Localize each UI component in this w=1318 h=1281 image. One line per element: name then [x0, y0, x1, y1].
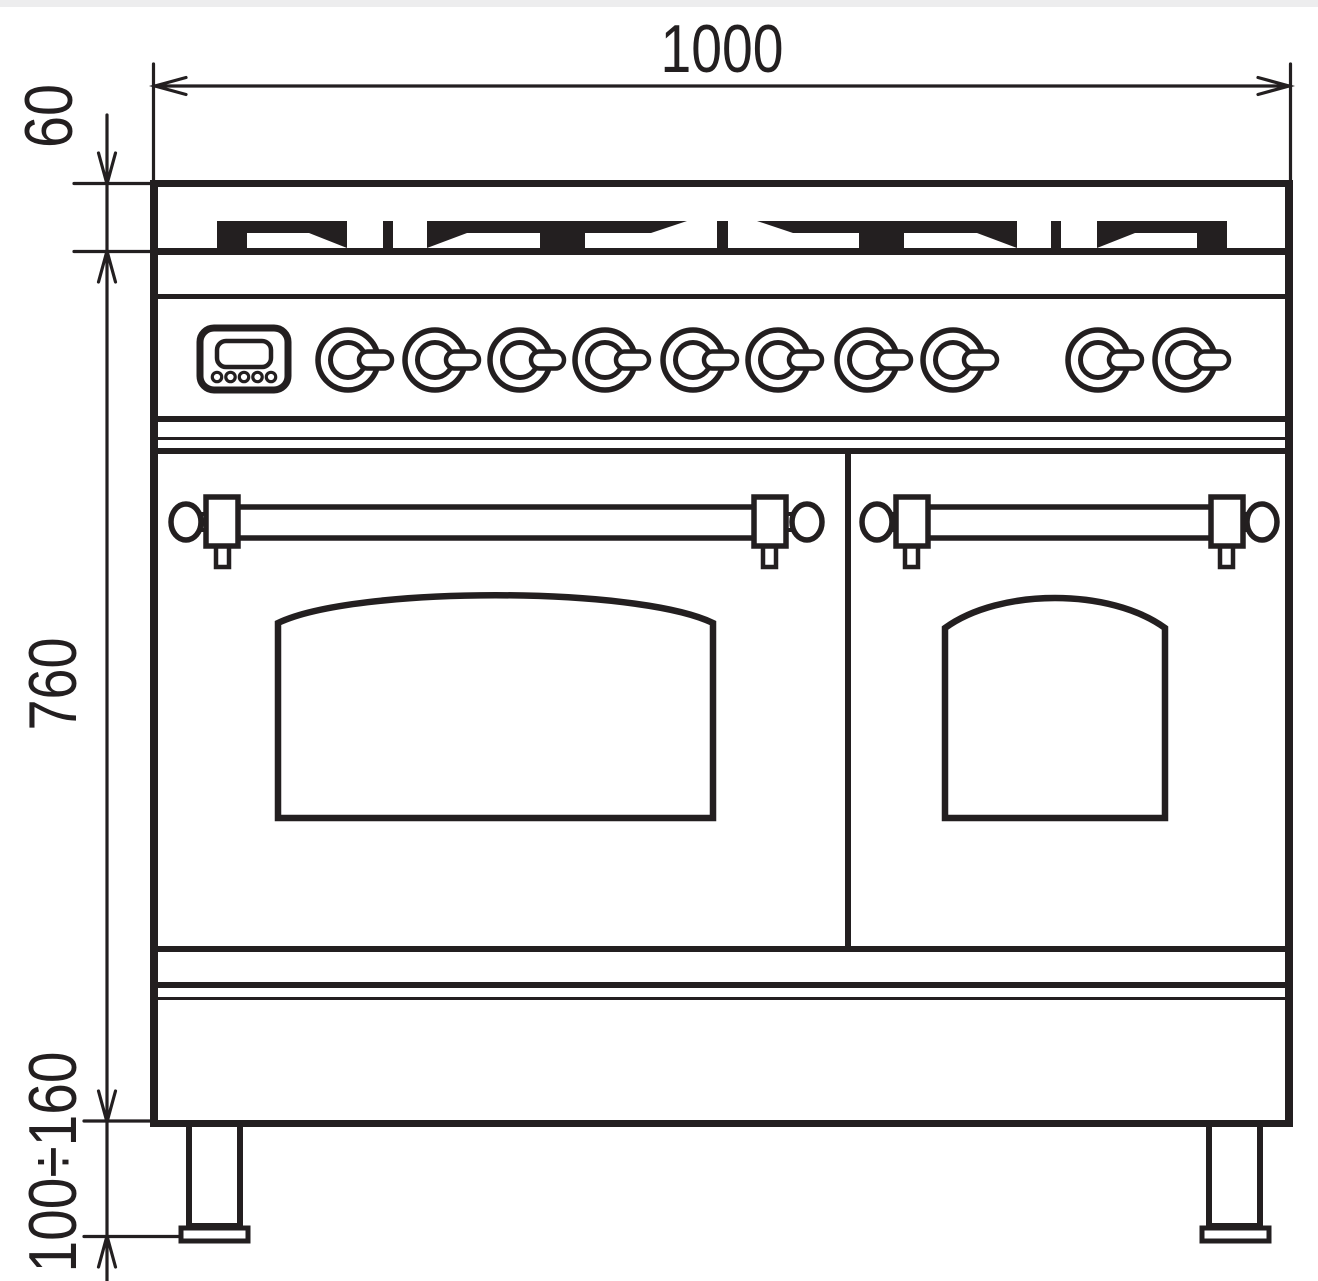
pan-support-mid-left — [427, 221, 687, 252]
right-leg-foot — [1202, 1228, 1269, 1241]
knob-1 — [318, 330, 392, 390]
pan-support-post-1 — [383, 221, 393, 252]
knob-4 — [575, 330, 649, 390]
handle-bracket — [896, 497, 928, 546]
right-leg — [1209, 1127, 1260, 1226]
range-cooker-elevation: 1000 60 760 100÷160 — [0, 0, 1318, 1281]
hob-pan-supports — [217, 221, 1227, 252]
dimension-label-leg-height-range: 100÷160 — [15, 1052, 91, 1273]
control-panel-bottom-line — [157, 416, 1287, 422]
dimension-label-hob-height: 60 — [11, 84, 87, 148]
knob-6 — [748, 330, 822, 390]
doors-bottom-line — [157, 946, 1287, 952]
right-door-handle — [862, 497, 1277, 567]
legs — [181, 1127, 1269, 1241]
trim-line-thin-upper — [157, 437, 1287, 440]
left-leg — [189, 1127, 240, 1226]
left-leg-foot — [181, 1228, 248, 1241]
handle-bar — [237, 507, 755, 538]
handle-end-ball — [171, 504, 201, 540]
handle-bracket — [754, 497, 786, 546]
trim-line-thin-lower — [157, 997, 1287, 1000]
pan-support-left — [217, 221, 347, 252]
dimension-label-body-height: 760 — [15, 638, 91, 731]
handle-bracket — [1211, 497, 1243, 546]
pan-support-post-2 — [1051, 221, 1061, 252]
display-button-4 — [253, 372, 262, 381]
dimension-overall-width: 1000 — [154, 11, 1291, 180]
hob-top-line — [150, 180, 1293, 187]
control-panel-top-line — [157, 294, 1287, 299]
handle-bracket — [206, 497, 238, 546]
display-button-3 — [239, 372, 248, 381]
display-screen — [217, 341, 271, 367]
dimension-left-chain: 60 760 100÷160 — [11, 84, 184, 1281]
knob-5 — [663, 330, 737, 390]
right-oven-window — [945, 598, 1165, 818]
handle-end-ball — [862, 504, 892, 540]
lower-band-line — [150, 982, 1293, 988]
left-oven-window — [278, 595, 713, 818]
plinth-bottom-line — [150, 1120, 1293, 1127]
oven-doors — [171, 448, 1277, 952]
handle-bar — [927, 507, 1212, 538]
dimension-annotations: 1000 60 760 100÷160 — [11, 11, 1291, 1281]
knob-10 — [1155, 330, 1229, 390]
control-panel — [200, 328, 1229, 390]
pan-support-right — [1097, 221, 1227, 252]
programmer-display — [200, 328, 288, 390]
knob-2 — [405, 330, 479, 390]
display-button-5 — [266, 372, 275, 381]
door-divider — [845, 448, 851, 952]
left-door-handle — [171, 497, 822, 567]
display-button-1 — [212, 372, 221, 381]
knob-3 — [490, 330, 564, 390]
knob-9 — [1068, 330, 1142, 390]
technical-drawing: 1000 60 760 100÷160 — [0, 0, 1318, 1281]
handle-end-ball — [1247, 504, 1277, 540]
cooker-body — [150, 180, 1293, 1127]
display-button-2 — [226, 372, 235, 381]
burner-knobs — [318, 330, 1229, 390]
dimension-label-overall-width: 1000 — [661, 11, 784, 87]
handle-end-ball — [792, 504, 822, 540]
knob-7 — [837, 330, 911, 390]
pan-support-mid-right — [757, 221, 1017, 252]
doors-top-line — [157, 448, 1287, 454]
knob-8 — [923, 330, 997, 390]
pan-support-post-center — [717, 221, 728, 252]
